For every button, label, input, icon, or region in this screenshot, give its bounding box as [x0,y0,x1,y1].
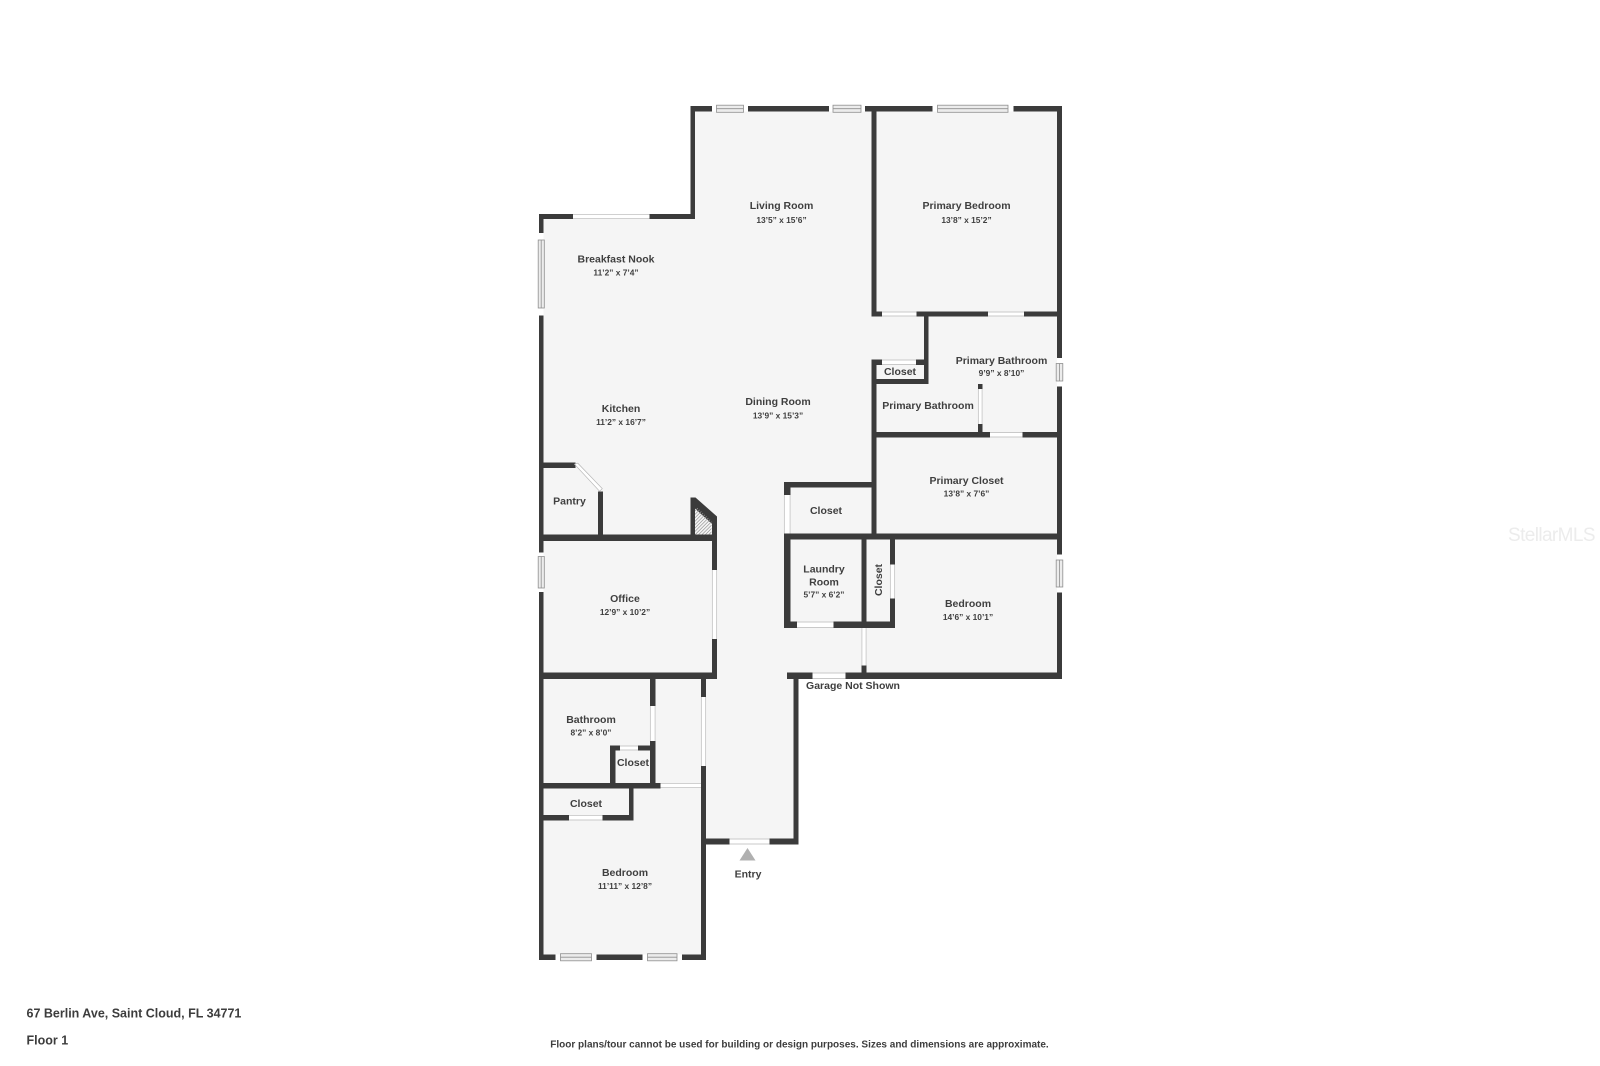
svg-text:14’6” x 10’1”: 14’6” x 10’1” [943,612,993,622]
svg-text:11’2” x 7’4”: 11’2” x 7’4” [593,268,638,278]
svg-text:Dining Room: Dining Room [745,396,810,408]
svg-text:Pantry: Pantry [553,496,586,508]
svg-text:Bedroom: Bedroom [945,598,991,610]
svg-text:11’11” x 12’8”: 11’11” x 12’8” [598,881,652,891]
svg-text:Primary Closet: Primary Closet [929,475,1004,487]
svg-text:StellarMLS: StellarMLS [1508,525,1595,546]
svg-text:Garage Not Shown: Garage Not Shown [806,680,900,692]
svg-text:Primary Bathroom: Primary Bathroom [956,355,1048,367]
svg-text:13’8” x 7’6”: 13’8” x 7’6” [944,489,990,499]
svg-text:9’9” x 8’10”: 9’9” x 8’10” [979,368,1025,378]
svg-text:Floor plans/tour cannot be use: Floor plans/tour cannot be used for buil… [550,1040,1049,1051]
svg-text:Floor 1: Floor 1 [27,1034,69,1048]
svg-text:Breakfast Nook: Breakfast Nook [577,254,654,266]
svg-text:Laundry: Laundry [803,564,845,576]
svg-text:Kitchen: Kitchen [602,403,641,415]
svg-text:13’5” x 15’6”: 13’5” x 15’6” [756,215,806,225]
svg-text:Office: Office [610,593,640,605]
svg-text:Closet: Closet [810,505,843,517]
svg-text:Primary Bedroom: Primary Bedroom [922,200,1010,212]
svg-text:5’7” x 6’2”: 5’7” x 6’2” [804,590,845,600]
svg-text:8’2” x 8’0”: 8’2” x 8’0” [571,728,612,738]
svg-text:Closet: Closet [873,563,885,596]
svg-text:13’9” x 15’3”: 13’9” x 15’3” [753,411,803,421]
svg-text:Bedroom: Bedroom [602,867,648,879]
svg-text:Closet: Closet [884,366,917,378]
svg-text:Room: Room [809,577,839,589]
svg-text:11’2” x 16’7”: 11’2” x 16’7” [596,417,646,427]
svg-text:Bathroom: Bathroom [566,714,616,726]
svg-text:12’9” x 10’2”: 12’9” x 10’2” [600,607,650,617]
svg-text:Living Room: Living Room [750,200,814,212]
svg-text:13’8” x 15’2”: 13’8” x 15’2” [941,215,991,225]
svg-text:Closet: Closet [570,798,603,810]
svg-text:Closet: Closet [617,757,650,769]
svg-text:67 Berlin Ave, Saint Cloud, FL: 67 Berlin Ave, Saint Cloud, FL 34771 [27,1007,242,1021]
svg-text:Entry: Entry [735,869,762,881]
svg-text:Primary Bathroom: Primary Bathroom [882,400,974,412]
